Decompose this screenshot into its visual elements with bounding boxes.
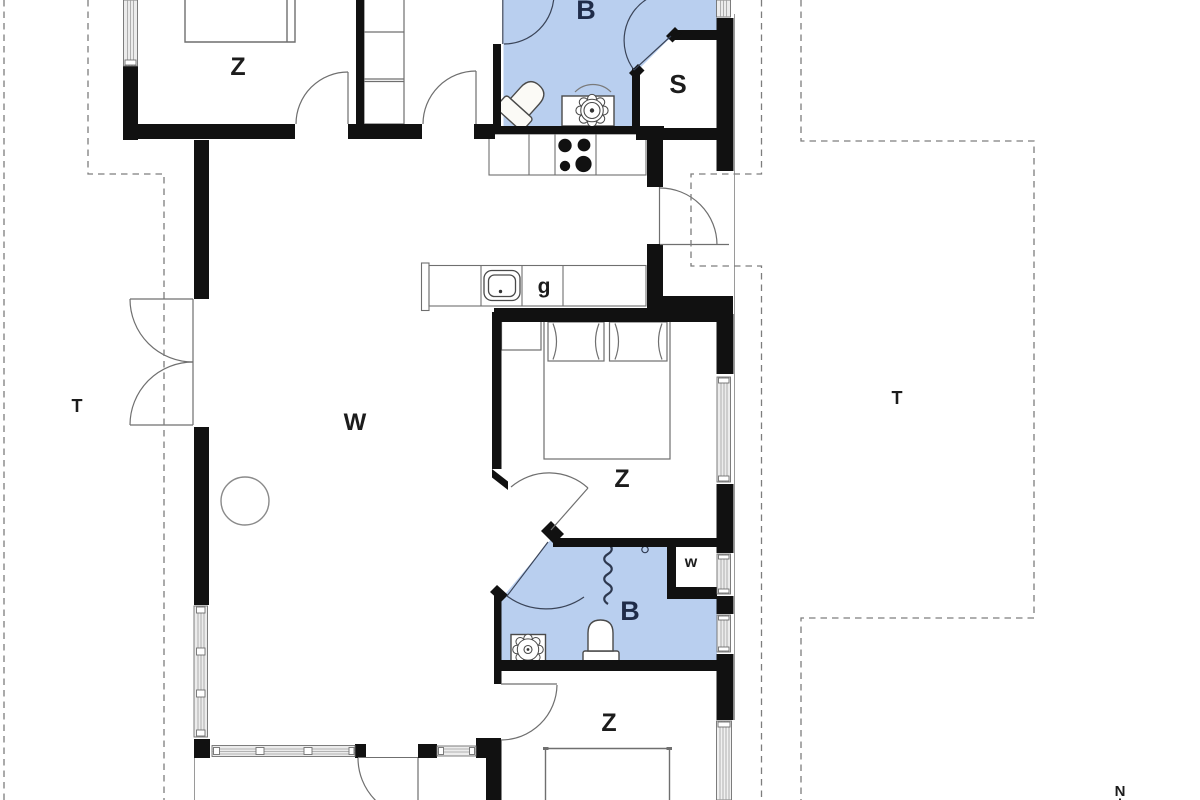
svg-text:Z: Z	[614, 465, 629, 493]
svg-text:w: w	[684, 554, 698, 571]
svg-text:Z: Z	[230, 53, 245, 81]
svg-text:W: W	[344, 409, 367, 436]
svg-text:T: T	[892, 388, 903, 408]
svg-text:B: B	[620, 596, 640, 626]
svg-text:B: B	[576, 0, 596, 25]
svg-text:T: T	[72, 396, 83, 416]
svg-text:S: S	[669, 69, 686, 99]
svg-text:N: N	[1115, 783, 1126, 800]
svg-text:Z: Z	[601, 709, 616, 737]
svg-text:g: g	[538, 275, 551, 298]
